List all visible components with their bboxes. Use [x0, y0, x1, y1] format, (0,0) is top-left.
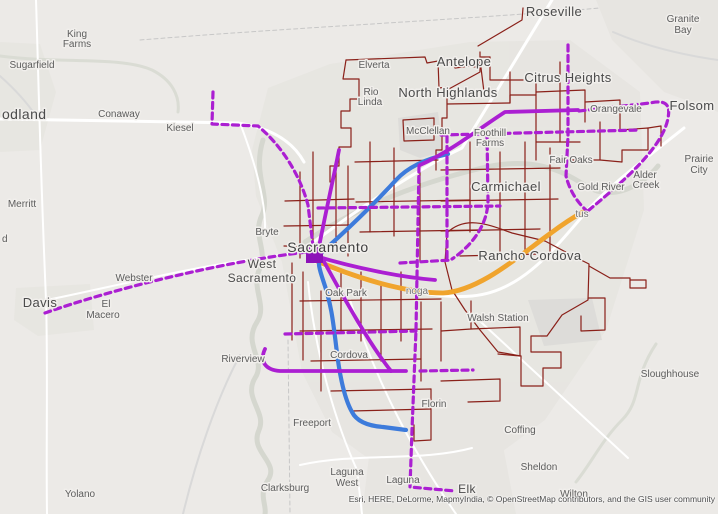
place-label-sheldon: Sheldon — [521, 462, 558, 473]
place-label-fair-oaks: Fair Oaks — [549, 155, 592, 166]
place-label-laguna: Laguna — [330, 467, 364, 478]
place-label-elverta: Elverta — [358, 60, 390, 71]
place-label-tus: tus — [575, 209, 588, 220]
place-label-city: City — [690, 165, 707, 176]
gray-roads-path — [183, 355, 240, 514]
place-label-sloughhouse: Sloughhouse — [641, 369, 700, 380]
place-label-yolano: Yolano — [65, 489, 96, 500]
creeks-path — [576, 344, 656, 482]
place-label-laguna: Laguna — [386, 475, 420, 486]
place-label-sugarfield: Sugarfield — [9, 60, 54, 71]
place-label-florin: Florin — [421, 399, 446, 410]
place-label-antelope: Antelope — [437, 54, 492, 69]
place-label-linda: Linda — [358, 97, 383, 108]
place-label-el: El — [102, 299, 111, 310]
place-label-noga: noga — [406, 286, 429, 297]
place-label-cordova: Cordova — [330, 350, 368, 361]
place-label-creek: Creek — [633, 180, 661, 191]
place-label-granite: Granite — [667, 14, 700, 25]
place-label-davis: Davis — [23, 295, 58, 310]
place-label-prairie: Prairie — [685, 154, 714, 165]
place-label-citrus-heights: Citrus Heights — [524, 70, 611, 85]
place-label-roseville: Roseville — [526, 4, 582, 19]
place-label-carmichael: Carmichael — [471, 179, 541, 194]
place-label-macero: Macero — [86, 310, 120, 321]
place-label-mcclellan: McClellan — [406, 126, 450, 137]
place-label-d: d — [2, 234, 8, 245]
place-label-webster: Webster — [115, 273, 153, 284]
place-label-sacramento: Sacramento — [228, 271, 297, 285]
map-svg: RosevilleGraniteBayKingFarmsSugarfieldod… — [0, 0, 718, 514]
place-label-clarksburg: Clarksburg — [261, 483, 309, 494]
place-label-merritt: Merritt — [8, 199, 37, 210]
street-network-path — [478, 8, 523, 46]
place-label-west: West — [336, 478, 359, 489]
place-label-bryte: Bryte — [255, 227, 279, 238]
place-label-riverview: Riverview — [221, 354, 265, 365]
place-label-conaway: Conaway — [98, 109, 140, 120]
place-label-bay: Bay — [674, 25, 691, 36]
place-label-farms: Farms — [63, 39, 91, 50]
place-label-orangevale: Orangevale — [590, 104, 642, 115]
place-label-coffing: Coffing — [504, 425, 536, 436]
place-label-farms: Farms — [476, 138, 504, 149]
place-label-west: West — [248, 257, 277, 271]
place-label-north-highlands: North Highlands — [398, 85, 497, 100]
street-network-path — [648, 126, 661, 146]
place-label-gold-river: Gold River — [577, 182, 625, 193]
place-label-sacramento: Sacramento — [287, 239, 368, 255]
map-canvas[interactable]: RosevilleGraniteBayKingFarmsSugarfieldod… — [0, 0, 718, 514]
place-label-kiesel: Kiesel — [166, 123, 193, 134]
place-label-walsh-station: Walsh Station — [467, 313, 528, 324]
place-label-odland: odland — [2, 106, 46, 122]
map-attribution: Esri, HERE, DeLorme, MapmyIndia, © OpenS… — [349, 494, 715, 504]
place-label-rancho-cordova: Rancho Cordova — [478, 248, 582, 263]
place-label-oak-park: Oak Park — [325, 288, 368, 299]
place-label-folsom: Folsom — [669, 98, 714, 113]
place-label-freeport: Freeport — [293, 418, 331, 429]
